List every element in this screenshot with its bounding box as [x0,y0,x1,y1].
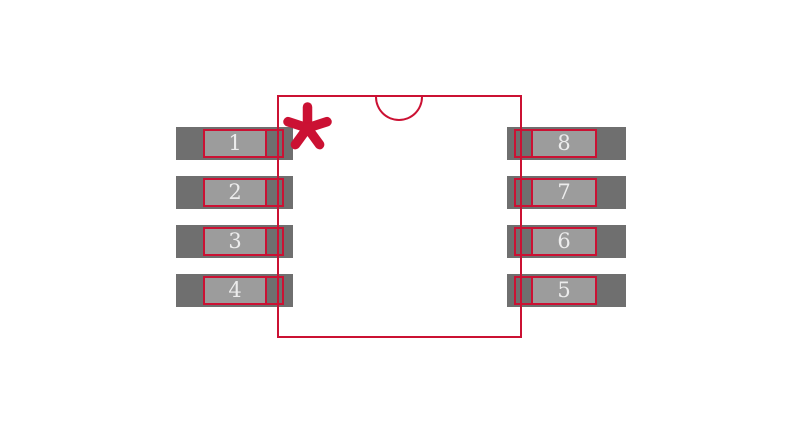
pin-number: 4 [228,280,241,301]
pin-number: 7 [557,182,570,203]
pad-pin-4: 4 [176,274,293,307]
pad-inner-area: 5 [533,278,595,303]
pad-pin-6: 6 [507,225,626,258]
pin-number: 8 [557,133,570,154]
pin-number: 6 [557,231,570,252]
pad-inner-area: 7 [533,180,595,205]
pin-lead-divider-line [265,129,267,158]
pin-lead-divider-line [531,227,533,256]
pin-lead-divider-line [265,276,267,305]
footprint-diagram-canvas: 1 2 3 4 8 7 [0,0,800,436]
pad-pin-5: 5 [507,274,626,307]
pin-number: 2 [228,182,241,203]
pad-inner-area: 1 [205,131,265,156]
pin1-asterisk-icon [280,99,335,155]
pad-inner-area: 8 [533,131,595,156]
pad-inner-area: 6 [533,229,595,254]
pad-pin-2: 2 [176,176,293,209]
pin-number: 1 [228,133,241,154]
pad-pin-8: 8 [507,127,626,160]
pin-lead-divider-line [265,227,267,256]
pad-pin-1: 1 [176,127,293,160]
pin-number: 5 [557,280,570,301]
pad-inner-area: 3 [205,229,265,254]
pin-lead-divider-line [531,276,533,305]
pad-inner-area: 2 [205,180,265,205]
pin-lead-divider-line [531,178,533,207]
pin-number: 3 [228,231,241,252]
pad-inner-area: 4 [205,278,265,303]
pad-pin-7: 7 [507,176,626,209]
pin-lead-divider-line [265,178,267,207]
pad-pin-3: 3 [176,225,293,258]
pin-lead-divider-line [531,129,533,158]
